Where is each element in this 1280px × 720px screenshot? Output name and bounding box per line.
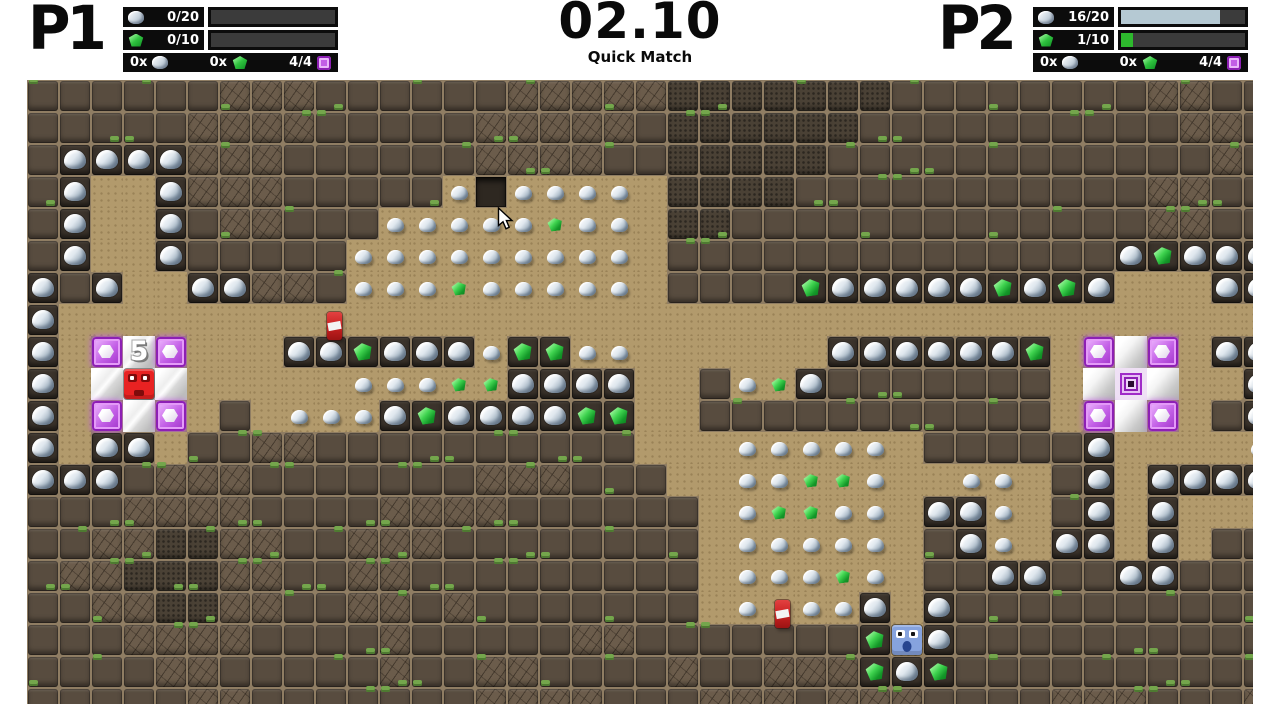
sand-floor[interactable] (635, 272, 667, 304)
sand-floor[interactable] (219, 336, 251, 368)
sand-floor[interactable] (763, 336, 795, 368)
dirt-dark[interactable] (1052, 177, 1082, 207)
rock-in-dirt[interactable] (1084, 465, 1114, 495)
rock-in-dirt[interactable] (1116, 561, 1146, 591)
rock-item[interactable] (315, 400, 347, 432)
sand-floor[interactable] (699, 464, 731, 496)
dirt-dark[interactable] (284, 177, 314, 207)
dirt-dark[interactable] (540, 593, 570, 623)
dirt-dark[interactable] (988, 401, 1018, 431)
dirt-dark[interactable] (732, 625, 762, 655)
rock-in-dirt[interactable] (476, 401, 506, 431)
sand-floor[interactable] (91, 304, 123, 336)
dirt-cracked[interactable] (220, 113, 250, 143)
rock-in-dirt[interactable] (892, 337, 922, 367)
dirt-dark[interactable] (220, 433, 250, 463)
dirt-cracked[interactable] (220, 625, 250, 655)
rock-item[interactable] (411, 368, 443, 400)
dirt-dark[interactable] (28, 689, 58, 704)
rock-item[interactable] (955, 464, 987, 496)
dirt-dark[interactable] (508, 625, 538, 655)
dirt-dark[interactable] (1052, 593, 1082, 623)
dirt-dark[interactable] (924, 81, 954, 111)
sand-floor[interactable] (923, 304, 955, 336)
gem-item[interactable] (475, 368, 507, 400)
dirt-cracked[interactable] (1180, 81, 1210, 111)
rock-item[interactable] (571, 336, 603, 368)
rock-item[interactable] (731, 464, 763, 496)
dirt-dark[interactable] (28, 113, 58, 143)
rock-item[interactable] (539, 272, 571, 304)
dirt-dark[interactable] (892, 241, 922, 271)
dirt-dark[interactable] (1244, 177, 1253, 207)
dirt-dark[interactable] (668, 593, 698, 623)
dirt-dark[interactable] (1020, 593, 1050, 623)
sand-floor[interactable] (1243, 304, 1253, 336)
sand-floor[interactable] (123, 176, 155, 208)
dirt-cracked[interactable] (572, 145, 602, 175)
dirt-dark[interactable] (828, 145, 858, 175)
dirt-dark[interactable] (828, 209, 858, 239)
dug-hole[interactable] (476, 177, 506, 207)
rock-in-dirt[interactable] (988, 561, 1018, 591)
dirt-dark[interactable] (924, 241, 954, 271)
sand-floor[interactable] (635, 176, 667, 208)
dirt-cracked[interactable] (252, 273, 282, 303)
dirt-dark[interactable] (1020, 145, 1050, 175)
dirt-dark[interactable] (828, 401, 858, 431)
dirt-dark[interactable] (604, 529, 634, 559)
crystal-block[interactable] (1148, 401, 1178, 431)
gem-in-dirt[interactable] (796, 273, 826, 303)
rock-item[interactable] (731, 592, 763, 624)
gem-in-dirt[interactable] (604, 401, 634, 431)
dirt-mossy[interactable] (668, 81, 698, 111)
rock-item[interactable] (379, 240, 411, 272)
dirt-cracked[interactable] (188, 625, 218, 655)
rock-item[interactable] (859, 560, 891, 592)
rock-item[interactable] (763, 528, 795, 560)
sand-floor[interactable] (859, 304, 891, 336)
dirt-dark[interactable] (988, 177, 1018, 207)
dirt-dark[interactable] (1020, 657, 1050, 687)
dirt-dark[interactable] (316, 273, 346, 303)
dirt-cracked[interactable] (572, 113, 602, 143)
dirt-cracked[interactable] (764, 689, 794, 704)
dirt-dark[interactable] (252, 465, 282, 495)
dirt-dark[interactable] (1244, 529, 1253, 559)
sand-floor[interactable] (155, 432, 187, 464)
dirt-dark[interactable] (316, 497, 346, 527)
dirt-mossy[interactable] (156, 593, 186, 623)
dirt-dark[interactable] (1116, 657, 1146, 687)
rock-item[interactable] (795, 592, 827, 624)
dirt-dark[interactable] (860, 401, 890, 431)
dirt-mossy[interactable] (796, 145, 826, 175)
dirt-dark[interactable] (1084, 241, 1114, 271)
rock-in-dirt[interactable] (924, 273, 954, 303)
dirt-cracked[interactable] (668, 657, 698, 687)
dirt-dark[interactable] (60, 625, 90, 655)
dirt-dark[interactable] (1084, 625, 1114, 655)
dirt-cracked[interactable] (124, 593, 154, 623)
dirt-dark[interactable] (1212, 401, 1242, 431)
rock-item[interactable] (347, 240, 379, 272)
rock-in-dirt[interactable] (28, 401, 58, 431)
dirt-cracked[interactable] (188, 145, 218, 175)
dirt-dark[interactable] (796, 241, 826, 271)
rock-item[interactable] (379, 368, 411, 400)
rock-in-dirt[interactable] (540, 369, 570, 399)
sand-floor[interactable] (1115, 464, 1147, 496)
player-red[interactable] (124, 369, 154, 399)
dirt-cracked[interactable] (220, 561, 250, 591)
dirt-dark[interactable] (572, 561, 602, 591)
rock-in-dirt[interactable] (124, 433, 154, 463)
dirt-dark[interactable] (1244, 209, 1253, 239)
rock-in-dirt[interactable] (124, 145, 154, 175)
dirt-dark[interactable] (508, 433, 538, 463)
dirt-dark[interactable] (156, 689, 186, 704)
sand-floor[interactable] (699, 528, 731, 560)
dirt-cracked[interactable] (220, 529, 250, 559)
sand-floor[interactable] (1019, 528, 1051, 560)
dirt-dark[interactable] (1052, 81, 1082, 111)
sand-floor[interactable] (187, 368, 219, 400)
dirt-dark[interactable] (476, 625, 506, 655)
dirt-dark[interactable] (700, 273, 730, 303)
rock-in-dirt[interactable] (28, 273, 58, 303)
rock-item[interactable] (859, 528, 891, 560)
dirt-dark[interactable] (1084, 113, 1114, 143)
rock-in-dirt[interactable] (1148, 497, 1178, 527)
sand-floor[interactable] (699, 592, 731, 624)
dirt-cracked[interactable] (1212, 113, 1242, 143)
sand-floor[interactable] (59, 336, 91, 368)
sand-floor[interactable] (1019, 496, 1051, 528)
rock-in-dirt[interactable] (60, 177, 90, 207)
dirt-dark[interactable] (1020, 401, 1050, 431)
crystal-block[interactable] (156, 337, 186, 367)
dirt-dark[interactable] (252, 657, 282, 687)
rock-in-dirt[interactable] (828, 273, 858, 303)
dirt-dark[interactable] (92, 81, 122, 111)
dirt-dark[interactable] (988, 145, 1018, 175)
dirt-cracked[interactable] (156, 497, 186, 527)
dirt-dark[interactable] (1116, 145, 1146, 175)
dirt-dark[interactable] (956, 113, 986, 143)
dirt-dark[interactable] (380, 145, 410, 175)
rock-item[interactable] (795, 528, 827, 560)
dirt-dark[interactable] (412, 625, 442, 655)
dirt-dark[interactable] (1020, 113, 1050, 143)
dirt-dark[interactable] (1212, 209, 1242, 239)
dirt-cracked[interactable] (476, 689, 506, 704)
dirt-dark[interactable] (284, 497, 314, 527)
sand-floor[interactable] (1115, 272, 1147, 304)
dirt-dark[interactable] (316, 625, 346, 655)
dirt-dark[interactable] (444, 145, 474, 175)
rock-in-dirt[interactable] (828, 337, 858, 367)
sand-floor[interactable] (1179, 528, 1211, 560)
rock-in-dirt[interactable] (1244, 337, 1253, 367)
dirt-dark[interactable] (28, 209, 58, 239)
rock-item[interactable] (795, 560, 827, 592)
dirt-cracked[interactable] (252, 113, 282, 143)
sand-floor[interactable] (1083, 304, 1115, 336)
dirt-cracked[interactable] (444, 497, 474, 527)
rock-in-dirt[interactable] (1084, 529, 1114, 559)
sand-floor[interactable] (667, 400, 699, 432)
crystal-block[interactable] (92, 401, 122, 431)
dirt-dark[interactable] (1084, 209, 1114, 239)
sand-floor[interactable] (251, 368, 283, 400)
dirt-dark[interactable] (316, 433, 346, 463)
rock-in-dirt[interactable] (1212, 273, 1242, 303)
rock-in-dirt[interactable] (956, 497, 986, 527)
dirt-cracked[interactable] (572, 81, 602, 111)
dirt-cracked[interactable] (604, 113, 634, 143)
dirt-cracked[interactable] (540, 689, 570, 704)
rock-item[interactable] (571, 272, 603, 304)
sand-floor[interactable] (891, 496, 923, 528)
rock-in-dirt[interactable] (1212, 337, 1242, 367)
sand-floor[interactable] (891, 304, 923, 336)
sand-floor[interactable] (379, 304, 411, 336)
sand-floor[interactable] (667, 368, 699, 400)
sand-floor[interactable] (1211, 304, 1243, 336)
dirt-dark[interactable] (444, 657, 474, 687)
dirt-dark[interactable] (1020, 209, 1050, 239)
dirt-dark[interactable] (860, 145, 890, 175)
sand-floor[interactable] (667, 304, 699, 336)
sand-floor[interactable] (315, 368, 347, 400)
dirt-mossy[interactable] (700, 177, 730, 207)
sand-floor[interactable] (251, 336, 283, 368)
dirt-dark[interactable] (636, 465, 666, 495)
dirt-dark[interactable] (348, 657, 378, 687)
sand-floor[interactable] (187, 400, 219, 432)
sand-floor[interactable] (795, 336, 827, 368)
dirt-cracked[interactable] (380, 593, 410, 623)
dirt-cracked[interactable] (412, 497, 442, 527)
rock-item[interactable] (443, 176, 475, 208)
sand-floor[interactable] (923, 464, 955, 496)
rock-in-dirt[interactable] (156, 177, 186, 207)
dirt-cracked[interactable] (412, 529, 442, 559)
sand-floor[interactable] (91, 240, 123, 272)
dirt-dark[interactable] (700, 401, 730, 431)
dirt-dark[interactable] (348, 465, 378, 495)
sand-floor[interactable] (123, 208, 155, 240)
dirt-cracked[interactable] (604, 625, 634, 655)
rock-in-dirt[interactable] (284, 337, 314, 367)
dirt-cracked[interactable] (188, 177, 218, 207)
dirt-dark[interactable] (956, 657, 986, 687)
sand-floor[interactable] (187, 336, 219, 368)
dirt-mossy[interactable] (732, 113, 762, 143)
dirt-mossy[interactable] (700, 113, 730, 143)
rock-in-dirt[interactable] (444, 337, 474, 367)
dirt-cracked[interactable] (220, 177, 250, 207)
dirt-dark[interactable] (1212, 561, 1242, 591)
dirt-cracked[interactable] (700, 689, 730, 704)
rock-item[interactable] (859, 496, 891, 528)
dirt-dark[interactable] (1052, 625, 1082, 655)
dirt-dark[interactable] (380, 113, 410, 143)
rock-in-dirt[interactable] (156, 209, 186, 239)
rock-item[interactable] (507, 240, 539, 272)
rock-in-dirt[interactable] (1052, 529, 1082, 559)
dirt-dark[interactable] (508, 593, 538, 623)
sand-floor[interactable] (1115, 304, 1147, 336)
gem-item[interactable] (539, 208, 571, 240)
dirt-cracked[interactable] (828, 657, 858, 687)
gem-in-dirt[interactable] (1148, 241, 1178, 271)
dirt-dark[interactable] (732, 209, 762, 239)
rock-in-dirt[interactable] (92, 145, 122, 175)
dirt-dark[interactable] (636, 145, 666, 175)
dirt-dark[interactable] (1148, 593, 1178, 623)
sand-floor[interactable] (1179, 336, 1211, 368)
dirt-dark[interactable] (1052, 241, 1082, 271)
dirt-dark[interactable] (412, 465, 442, 495)
dirt-cracked[interactable] (1148, 177, 1178, 207)
dirt-dark[interactable] (732, 657, 762, 687)
sand-floor[interactable] (155, 272, 187, 304)
sand-floor[interactable] (891, 432, 923, 464)
rock-item[interactable] (731, 496, 763, 528)
gem-item[interactable] (827, 560, 859, 592)
rock-in-dirt[interactable] (1148, 561, 1178, 591)
dirt-dark[interactable] (284, 209, 314, 239)
rock-in-dirt[interactable] (1020, 273, 1050, 303)
dirt-dark[interactable] (1084, 561, 1114, 591)
dirt-dark[interactable] (220, 401, 250, 431)
sand-floor[interactable] (507, 304, 539, 336)
dirt-dark[interactable] (1148, 145, 1178, 175)
dirt-mossy[interactable] (700, 145, 730, 175)
checkpoint-flag[interactable] (775, 600, 790, 628)
rock-item[interactable] (731, 432, 763, 464)
sand-floor[interactable] (891, 560, 923, 592)
dirt-dark[interactable] (1148, 113, 1178, 143)
dirt-cracked[interactable] (156, 657, 186, 687)
dirt-mossy[interactable] (860, 81, 890, 111)
rock-item[interactable] (571, 240, 603, 272)
dirt-cracked[interactable] (508, 81, 538, 111)
sand-floor[interactable] (1179, 304, 1211, 336)
rock-in-dirt[interactable] (892, 657, 922, 687)
dirt-dark[interactable] (60, 113, 90, 143)
gem-item[interactable] (763, 496, 795, 528)
rock-in-dirt[interactable] (604, 369, 634, 399)
dirt-dark[interactable] (476, 81, 506, 111)
crystal-block[interactable] (1084, 401, 1114, 431)
sand-floor[interactable] (571, 304, 603, 336)
dirt-dark[interactable] (764, 209, 794, 239)
dirt-dark[interactable] (732, 401, 762, 431)
dirt-dark[interactable] (284, 529, 314, 559)
sand-floor[interactable] (347, 304, 379, 336)
dirt-mossy[interactable] (764, 177, 794, 207)
dirt-mossy[interactable] (764, 145, 794, 175)
dirt-dark[interactable] (988, 241, 1018, 271)
sand-floor[interactable] (1179, 496, 1211, 528)
rock-in-dirt[interactable] (1180, 465, 1210, 495)
dirt-cracked[interactable] (92, 529, 122, 559)
rock-in-dirt[interactable] (860, 593, 890, 623)
rock-item[interactable] (859, 432, 891, 464)
rock-item[interactable] (731, 560, 763, 592)
rock-in-dirt[interactable] (316, 337, 346, 367)
dirt-dark[interactable] (316, 177, 346, 207)
dirt-cracked[interactable] (252, 209, 282, 239)
dirt-dark[interactable] (636, 113, 666, 143)
dirt-dark[interactable] (572, 465, 602, 495)
dirt-dark[interactable] (348, 433, 378, 463)
sand-floor[interactable] (1051, 400, 1083, 432)
rock-in-dirt[interactable] (796, 369, 826, 399)
sand-floor[interactable] (635, 304, 667, 336)
sand-floor[interactable] (699, 336, 731, 368)
sand-floor[interactable] (699, 496, 731, 528)
dirt-cracked[interactable] (348, 593, 378, 623)
dirt-cracked[interactable] (796, 657, 826, 687)
rock-item[interactable] (1243, 432, 1253, 464)
dirt-dark[interactable] (444, 81, 474, 111)
gem-in-dirt[interactable] (860, 625, 890, 655)
sand-floor[interactable] (59, 400, 91, 432)
rock-item[interactable] (603, 176, 635, 208)
dirt-dark[interactable] (956, 145, 986, 175)
dirt-cracked[interactable] (572, 625, 602, 655)
gem-item[interactable] (795, 496, 827, 528)
sand-floor[interactable] (219, 368, 251, 400)
dirt-dark[interactable] (572, 529, 602, 559)
checkpoint-flag[interactable] (327, 312, 342, 340)
rock-item[interactable] (411, 272, 443, 304)
dirt-dark[interactable] (956, 241, 986, 271)
rock-item[interactable] (571, 208, 603, 240)
crystal-block[interactable] (1084, 337, 1114, 367)
dirt-dark[interactable] (924, 369, 954, 399)
rock-in-dirt[interactable] (540, 401, 570, 431)
dirt-dark[interactable] (316, 241, 346, 271)
rock-item[interactable] (603, 272, 635, 304)
dirt-dark[interactable] (892, 209, 922, 239)
sand-floor[interactable] (635, 208, 667, 240)
sand-floor[interactable] (1211, 432, 1243, 464)
sand-floor[interactable] (1211, 368, 1243, 400)
dirt-dark[interactable] (764, 273, 794, 303)
rock-item[interactable] (507, 272, 539, 304)
dirt-cracked[interactable] (572, 689, 602, 704)
rock-in-dirt[interactable] (924, 625, 954, 655)
dirt-dark[interactable] (668, 273, 698, 303)
dirt-dark[interactable] (540, 561, 570, 591)
dirt-cracked[interactable] (252, 593, 282, 623)
sand-floor[interactable] (1243, 496, 1253, 528)
sand-floor[interactable] (1019, 304, 1051, 336)
sand-floor[interactable] (795, 304, 827, 336)
rock-item[interactable] (539, 240, 571, 272)
dirt-dark[interactable] (284, 241, 314, 271)
dirt-dark[interactable] (636, 689, 666, 704)
sand-floor[interactable] (763, 304, 795, 336)
dirt-dark[interactable] (412, 593, 442, 623)
dirt-dark[interactable] (188, 209, 218, 239)
